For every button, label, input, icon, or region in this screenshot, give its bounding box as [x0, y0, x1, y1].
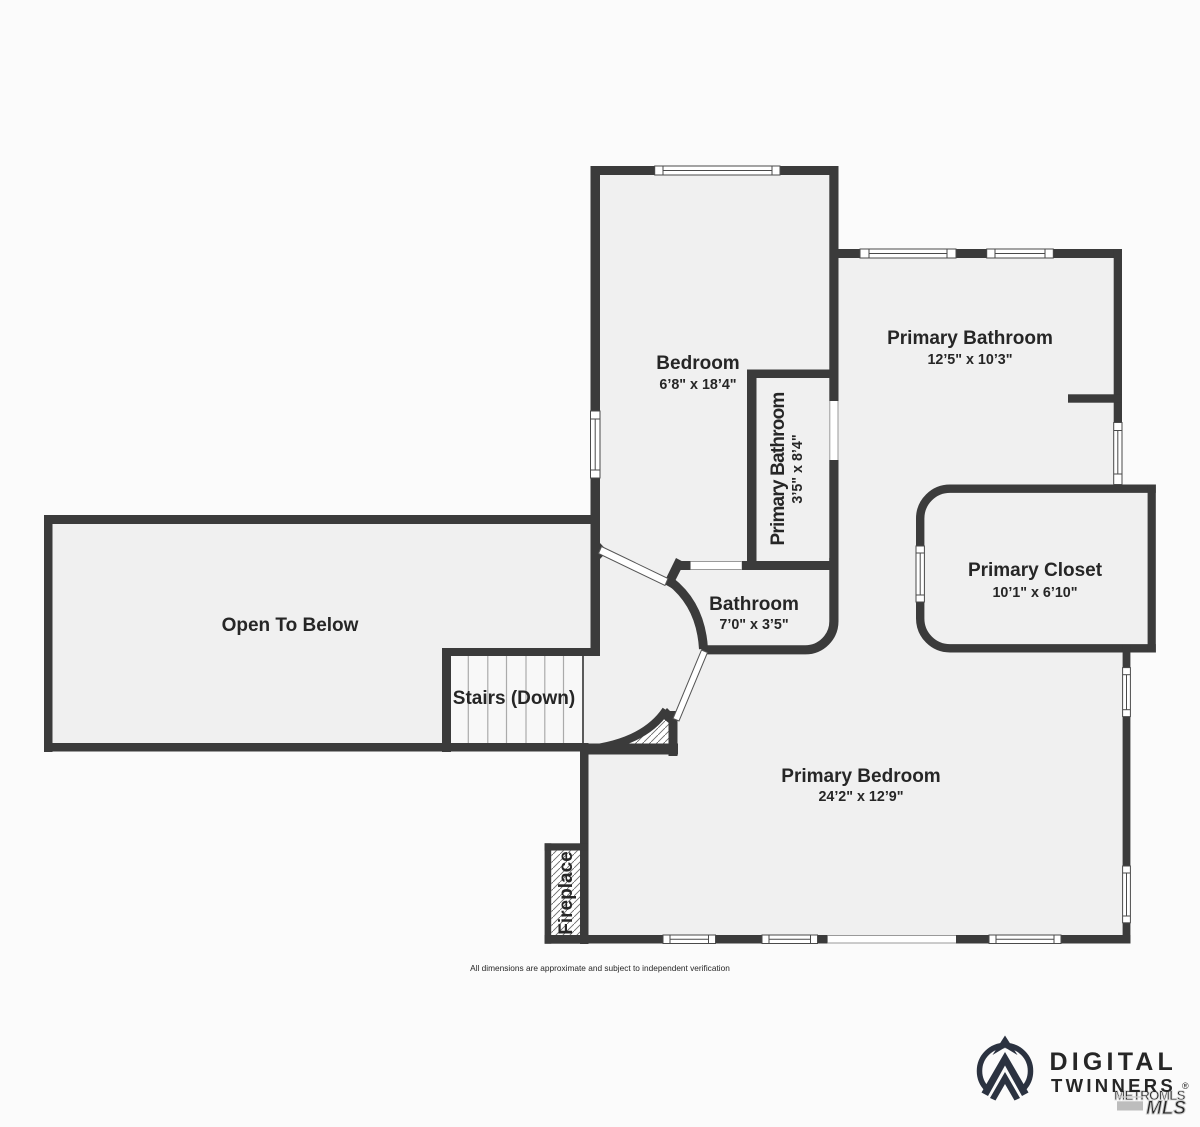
- svg-text:Open To Below: Open To Below: [222, 615, 359, 636]
- svg-text:6’8" x 18’4": 6’8" x 18’4": [659, 377, 736, 393]
- svg-text:DIGITAL: DIGITAL: [1050, 1048, 1178, 1076]
- svg-text:®: ®: [1182, 1081, 1189, 1091]
- svg-text:Primary Bedroom: Primary Bedroom: [781, 766, 940, 787]
- svg-text:Primary Closet: Primary Closet: [968, 560, 1103, 581]
- svg-text:Primary Bathroom: Primary Bathroom: [887, 328, 1053, 349]
- svg-text:Bedroom: Bedroom: [656, 353, 739, 374]
- svg-text:24’2" x 12’9": 24’2" x 12’9": [818, 789, 903, 805]
- svg-text:Primary Bathroom: Primary Bathroom: [768, 393, 789, 546]
- svg-text:Stairs (Down): Stairs (Down): [453, 688, 575, 709]
- svg-text:Bathroom: Bathroom: [709, 594, 799, 615]
- svg-text:All dimensions are approximate: All dimensions are approximate and subje…: [470, 963, 730, 973]
- svg-text:12’5" x 10’3": 12’5" x 10’3": [927, 352, 1012, 368]
- svg-text:TWINNERS: TWINNERS: [1051, 1075, 1176, 1096]
- svg-text:10’1" x 6’10": 10’1" x 6’10": [992, 585, 1077, 601]
- svg-text:Fireplace: Fireplace: [556, 851, 577, 934]
- svg-text:3’5" x 8’4": 3’5" x 8’4": [790, 434, 806, 503]
- svg-text:MLS: MLS: [1146, 1098, 1186, 1119]
- svg-text:7’0" x 3’5": 7’0" x 3’5": [719, 617, 788, 633]
